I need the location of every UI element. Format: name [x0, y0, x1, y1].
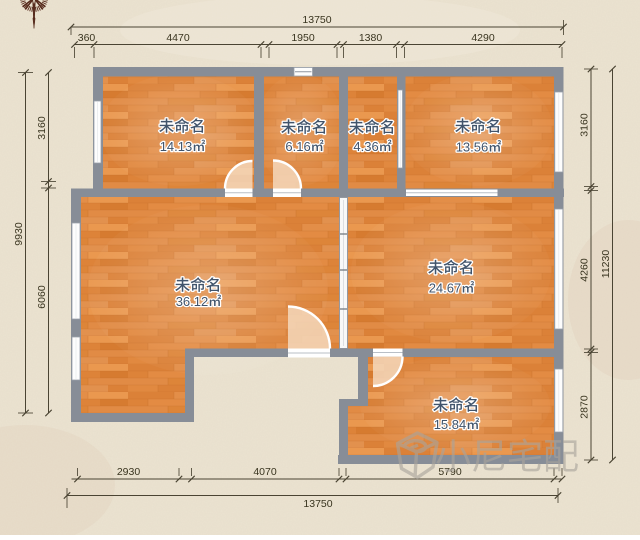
svg-text:2930: 2930 [117, 466, 141, 478]
svg-text:4290: 4290 [471, 32, 495, 44]
svg-text:24.67: 24.67 [429, 281, 462, 296]
svg-text:4260: 4260 [579, 258, 591, 282]
svg-text:3160: 3160 [579, 113, 591, 137]
svg-text:36.12: 36.12 [176, 294, 209, 309]
svg-text:14.13: 14.13 [160, 139, 193, 154]
svg-text:4.36: 4.36 [353, 139, 378, 154]
svg-text:4070: 4070 [253, 466, 277, 478]
svg-text:6060: 6060 [36, 285, 48, 309]
svg-text:9930: 9930 [13, 222, 25, 246]
svg-text:13750: 13750 [303, 498, 332, 510]
svg-text:1950: 1950 [291, 32, 315, 44]
svg-text:6.16: 6.16 [285, 139, 310, 154]
svg-text:2870: 2870 [579, 395, 591, 419]
svg-text:13.56: 13.56 [456, 140, 489, 155]
svg-text:13750: 13750 [302, 14, 331, 26]
svg-text:11230: 11230 [600, 250, 612, 279]
svg-text:1380: 1380 [359, 32, 383, 44]
svg-text:15.84: 15.84 [434, 417, 467, 432]
svg-text:3160: 3160 [36, 116, 48, 140]
svg-text:5790: 5790 [438, 466, 462, 478]
svg-text:4470: 4470 [166, 32, 190, 44]
svg-text:360: 360 [78, 32, 96, 44]
